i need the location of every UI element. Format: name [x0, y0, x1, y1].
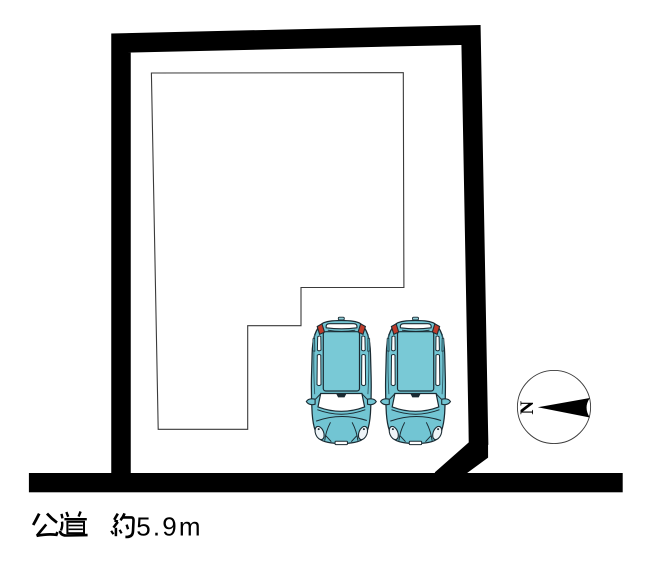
- svg-text:5.9m: 5.9m: [136, 512, 203, 542]
- svg-text:N: N: [517, 401, 538, 415]
